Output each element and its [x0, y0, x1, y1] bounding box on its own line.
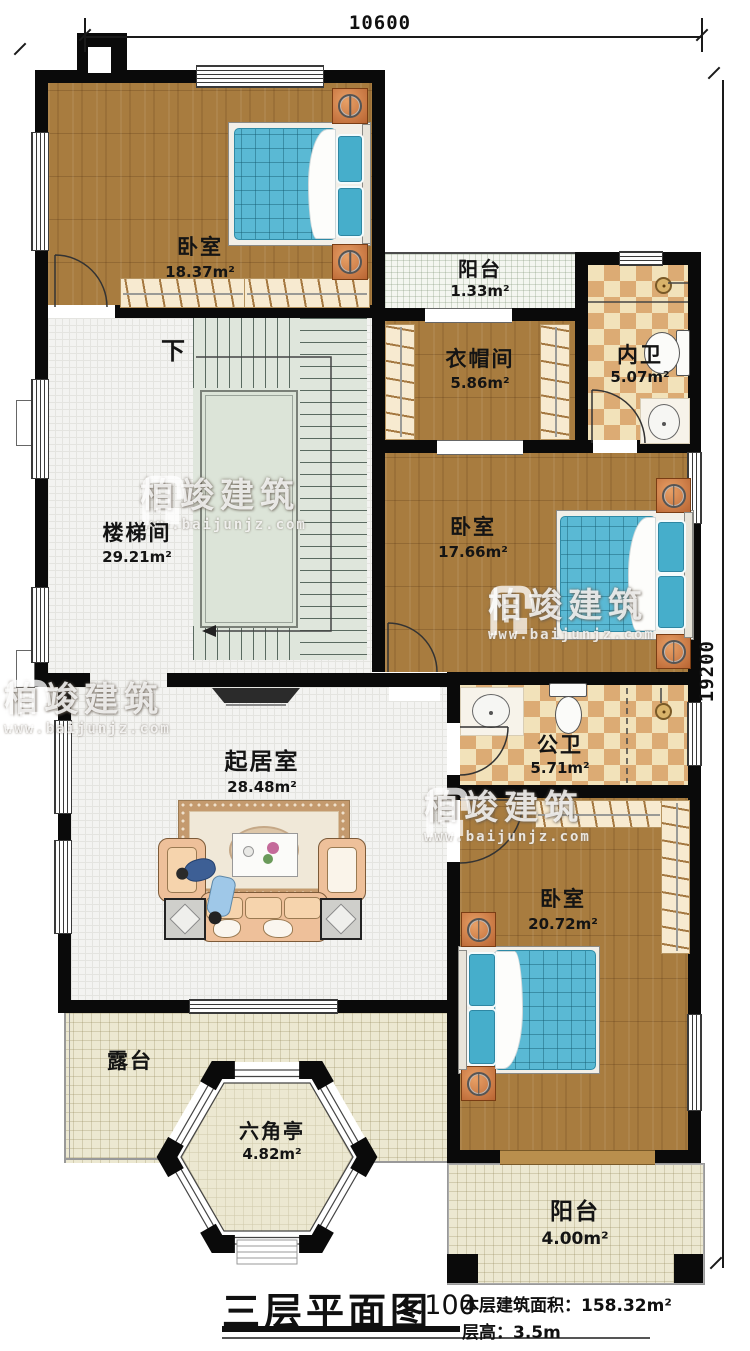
title-underline-thin — [222, 1337, 650, 1339]
stair-arrow-head — [202, 625, 216, 637]
room-label-pavilion: 六角亭 — [222, 1120, 322, 1142]
room-label-cloakroom: 衣帽间 — [420, 348, 540, 371]
dimension-top-value: 10600 — [340, 12, 420, 34]
stair-direction-line — [196, 357, 331, 631]
room-label-bath-public: 公卫 — [518, 734, 602, 757]
room-label-bedroom1: 卧室 — [150, 236, 250, 259]
room-area-balcony-top: 1.33m² — [425, 283, 535, 300]
stair-down-label: 下 — [156, 338, 192, 364]
room-label-terrace: 露台 — [88, 1050, 172, 1073]
room-area-stairwell: 29.21m² — [82, 549, 192, 566]
door-bath-public — [460, 727, 508, 775]
title-underline-thick — [222, 1326, 460, 1332]
plan-floor-area: 本层建筑面积：158.32m² — [462, 1291, 672, 1316]
room-area-bedroom2: 17.66m² — [428, 544, 518, 561]
room-area-cloakroom: 5.86m² — [420, 375, 540, 392]
room-area-living-room: 28.48m² — [202, 779, 322, 796]
room-area-bath-private: 5.07m² — [598, 369, 682, 386]
room-area-bedroom3: 20.72m² — [518, 916, 608, 933]
room-label-living-room: 起居室 — [202, 750, 322, 775]
door-swing-arcs — [0, 0, 750, 1351]
room-label-bath-private: 内卫 — [598, 344, 682, 367]
dimension-line-right — [722, 80, 724, 1268]
room-area-pavilion: 4.82m² — [222, 1146, 322, 1163]
room-label-bedroom3: 卧室 — [518, 888, 608, 911]
room-label-balcony-bottom: 阳台 — [520, 1200, 630, 1225]
room-label-bedroom2: 卧室 — [428, 516, 518, 539]
door-bath-private — [592, 390, 645, 443]
dimension-right-value: 19200 — [696, 640, 718, 702]
door-bedroom2 — [388, 623, 437, 672]
door-bedroom3 — [460, 800, 523, 863]
door-bedroom1 — [55, 255, 107, 307]
room-area-bath-public: 5.71m² — [518, 760, 602, 777]
room-area-balcony-bottom: 4.00m² — [520, 1230, 630, 1249]
room-label-balcony-top: 阳台 — [425, 258, 535, 280]
room-label-stairwell: 楼梯间 — [82, 522, 192, 545]
plan-floor-height: 层高：3.5m — [462, 1318, 561, 1343]
room-area-bedroom1: 18.37m² — [150, 264, 250, 281]
dimension-line-top — [85, 36, 702, 38]
floor-plan-canvas: 10600 19200 — [0, 0, 750, 1351]
